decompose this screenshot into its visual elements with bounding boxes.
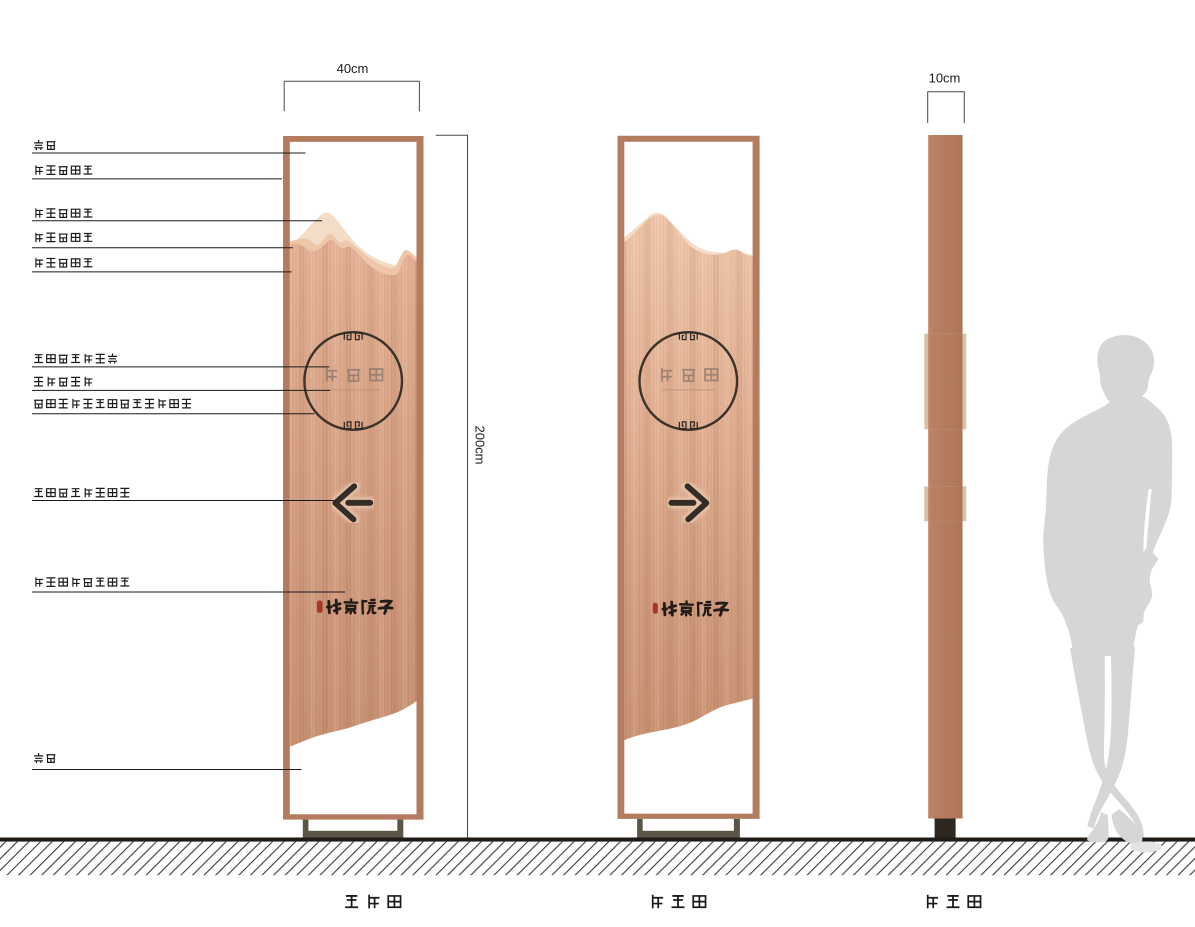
svg-text:40cm: 40cm [337,61,369,76]
svg-text:10cm: 10cm [929,71,961,86]
svg-text:200cm: 200cm [473,425,488,464]
